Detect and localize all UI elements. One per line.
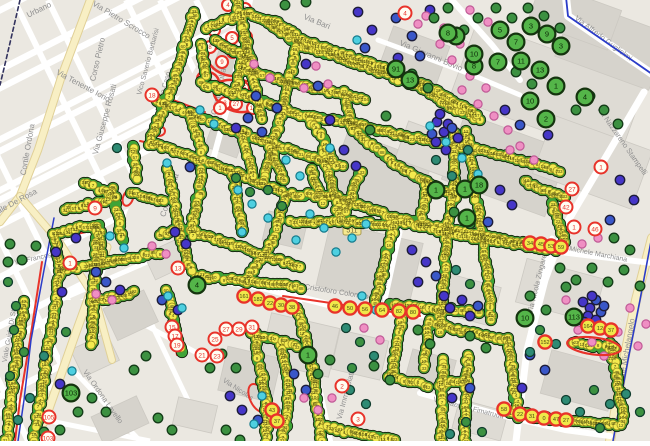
svg-text:27: 27 (233, 102, 240, 108)
